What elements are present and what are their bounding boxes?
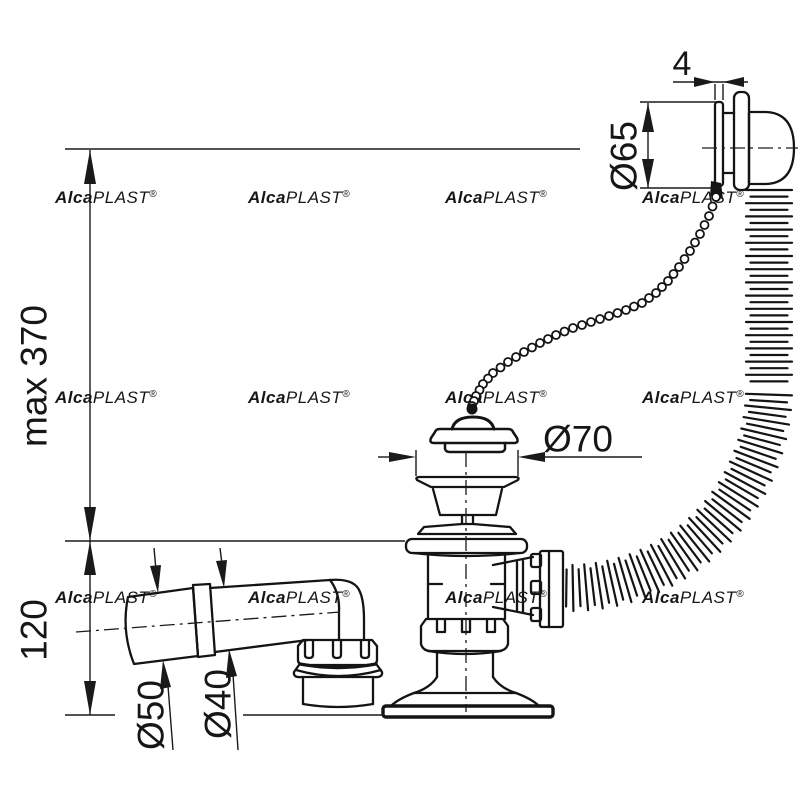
outlet-collar — [193, 584, 215, 657]
body-nut-slot-3 — [487, 619, 495, 632]
bath-drain-technical-drawing: AlcaPLAST®AlcaPLAST®AlcaPLAST®AlcaPLAST®… — [0, 0, 800, 800]
watermark-text: AlcaPLAST® — [247, 388, 350, 407]
chain-clasp — [467, 404, 478, 415]
spigot-top — [493, 557, 533, 565]
label-d65: Ø65 — [604, 121, 645, 191]
dimension-d70: Ø70 — [378, 419, 642, 477]
dimension-max-370: max 370 — [14, 149, 581, 541]
watermark-text: AlcaPLAST® — [247, 588, 350, 607]
watermark-text: AlcaPLAST® — [444, 388, 547, 407]
watermark-text: AlcaPLAST® — [444, 188, 547, 207]
base-plate — [383, 706, 553, 717]
plug-knob-arch — [452, 417, 494, 429]
dimension-d65: Ø65 — [604, 102, 719, 191]
label-d50: Ø50 — [131, 680, 172, 750]
body-nut-slot-1 — [437, 619, 445, 632]
dimension-d50: Ø50 — [131, 548, 174, 750]
elbow-nut — [298, 640, 377, 665]
watermark-text: AlcaPLAST® — [54, 588, 157, 607]
foot-flare-right — [493, 677, 516, 693]
strainer-cone — [433, 489, 502, 515]
watermark-text: AlcaPLAST® — [641, 188, 744, 207]
outlet-centerline — [76, 612, 340, 632]
plug-skirt — [445, 443, 505, 452]
plug-chain — [467, 193, 721, 415]
spigot-bottom — [493, 607, 533, 615]
watermark-text: AlcaPLAST® — [641, 388, 744, 407]
label-d70: Ø70 — [543, 419, 613, 460]
watermark-layer: AlcaPLAST®AlcaPLAST®AlcaPLAST®AlcaPLAST®… — [54, 188, 744, 607]
foot-flare-left — [414, 677, 437, 693]
plug-cap — [430, 429, 517, 443]
elbow-nut-slot-1 — [305, 640, 313, 658]
overflow-fitting — [710, 92, 794, 199]
bath-plug — [430, 417, 517, 452]
elbow-cup-bottom — [303, 704, 373, 707]
watermark-text: AlcaPLAST® — [54, 188, 157, 207]
outlet-pipe-top — [210, 580, 330, 588]
label-d40: Ø40 — [198, 669, 239, 739]
watermark-text: AlcaPLAST® — [247, 188, 350, 207]
strainer-flange-small — [418, 524, 516, 534]
elbow-skirt-ellipse — [296, 670, 381, 676]
foot-skirt-right — [516, 693, 539, 706]
watermark-text: AlcaPLAST® — [641, 588, 744, 607]
elbow-nut-slot-2 — [333, 640, 341, 658]
drain-body — [383, 551, 563, 717]
label-120: 120 — [14, 599, 55, 661]
strainer-rim — [416, 477, 518, 487]
overflow-rosette-plate — [715, 102, 723, 186]
chain-beads — [468, 193, 720, 410]
label-4: 4 — [673, 45, 692, 83]
label-max-370: max 370 — [14, 305, 55, 447]
foot-skirt-left — [391, 693, 414, 706]
watermark-text: AlcaPLAST® — [54, 388, 157, 407]
overflow-flange-disc — [734, 92, 749, 190]
elbow-nut-slot-3 — [361, 640, 369, 658]
